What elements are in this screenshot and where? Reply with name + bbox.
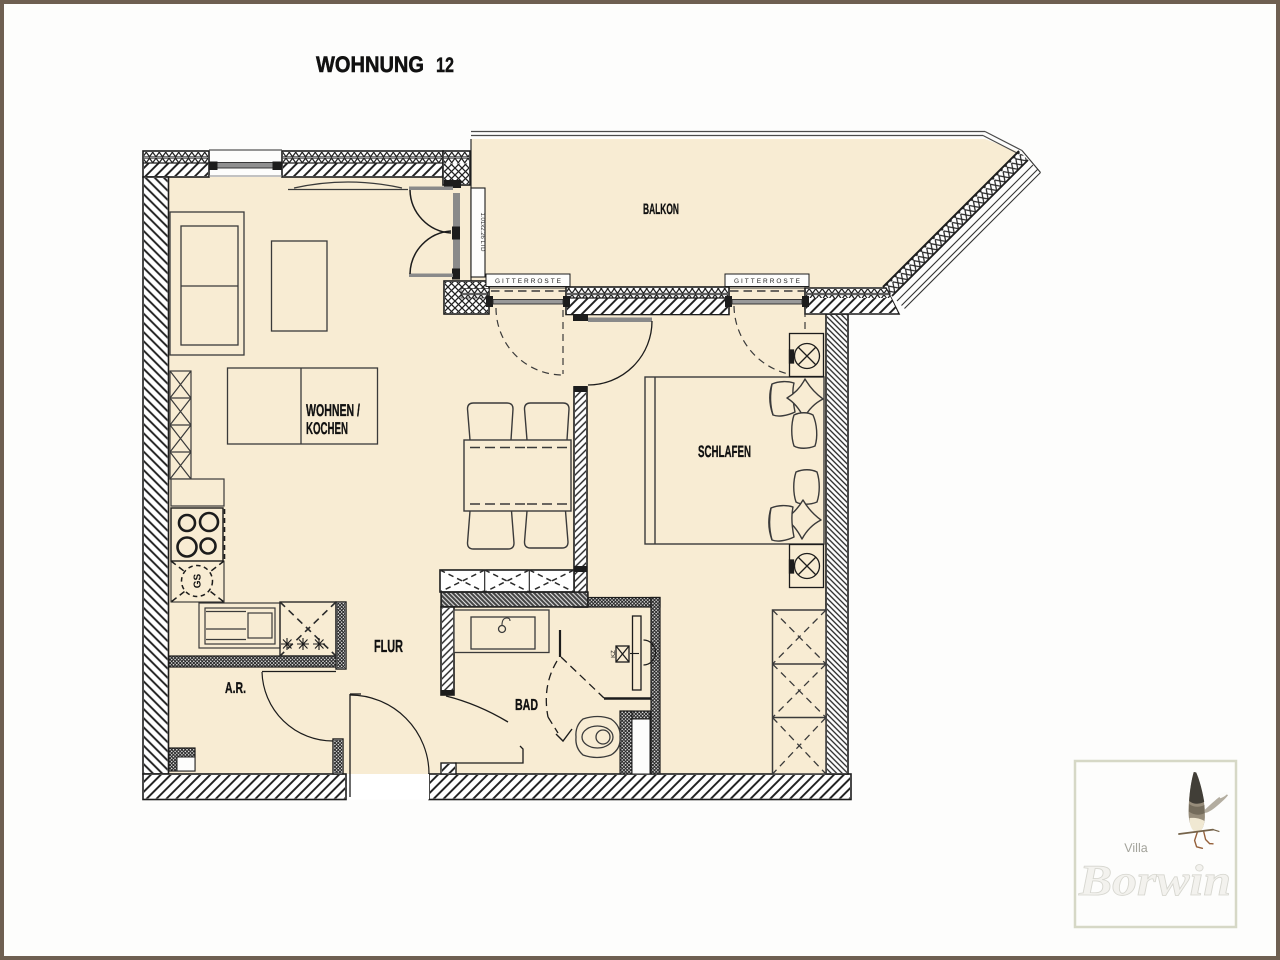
svg-text:GS: GS	[193, 573, 204, 588]
svg-text:12: 12	[436, 54, 454, 77]
svg-text:GITTERROSTE: GITTERROSTE	[495, 278, 562, 285]
svg-text:Borwin: Borwin	[1078, 856, 1231, 905]
svg-text:FLUR: FLUR	[374, 636, 403, 656]
svg-text:KOCHEN: KOCHEN	[306, 419, 348, 438]
svg-text:WOHNUNG: WOHNUNG	[316, 52, 424, 77]
svg-text:GITTERROSTE: GITTERROSTE	[734, 278, 801, 285]
svg-text:BALKON: BALKON	[643, 201, 679, 218]
svg-text:WOHNEN /: WOHNEN /	[306, 401, 360, 420]
svg-text:A.R.: A.R.	[225, 680, 246, 697]
svg-text:1.01x2.26 LTD: 1.01x2.26 LTD	[479, 213, 486, 253]
svg-text:SCHLAFEN: SCHLAFEN	[698, 443, 751, 461]
svg-text:KZ: KZ	[610, 650, 617, 658]
svg-text:BAD: BAD	[515, 697, 538, 714]
svg-text:Villa: Villa	[1124, 841, 1147, 855]
